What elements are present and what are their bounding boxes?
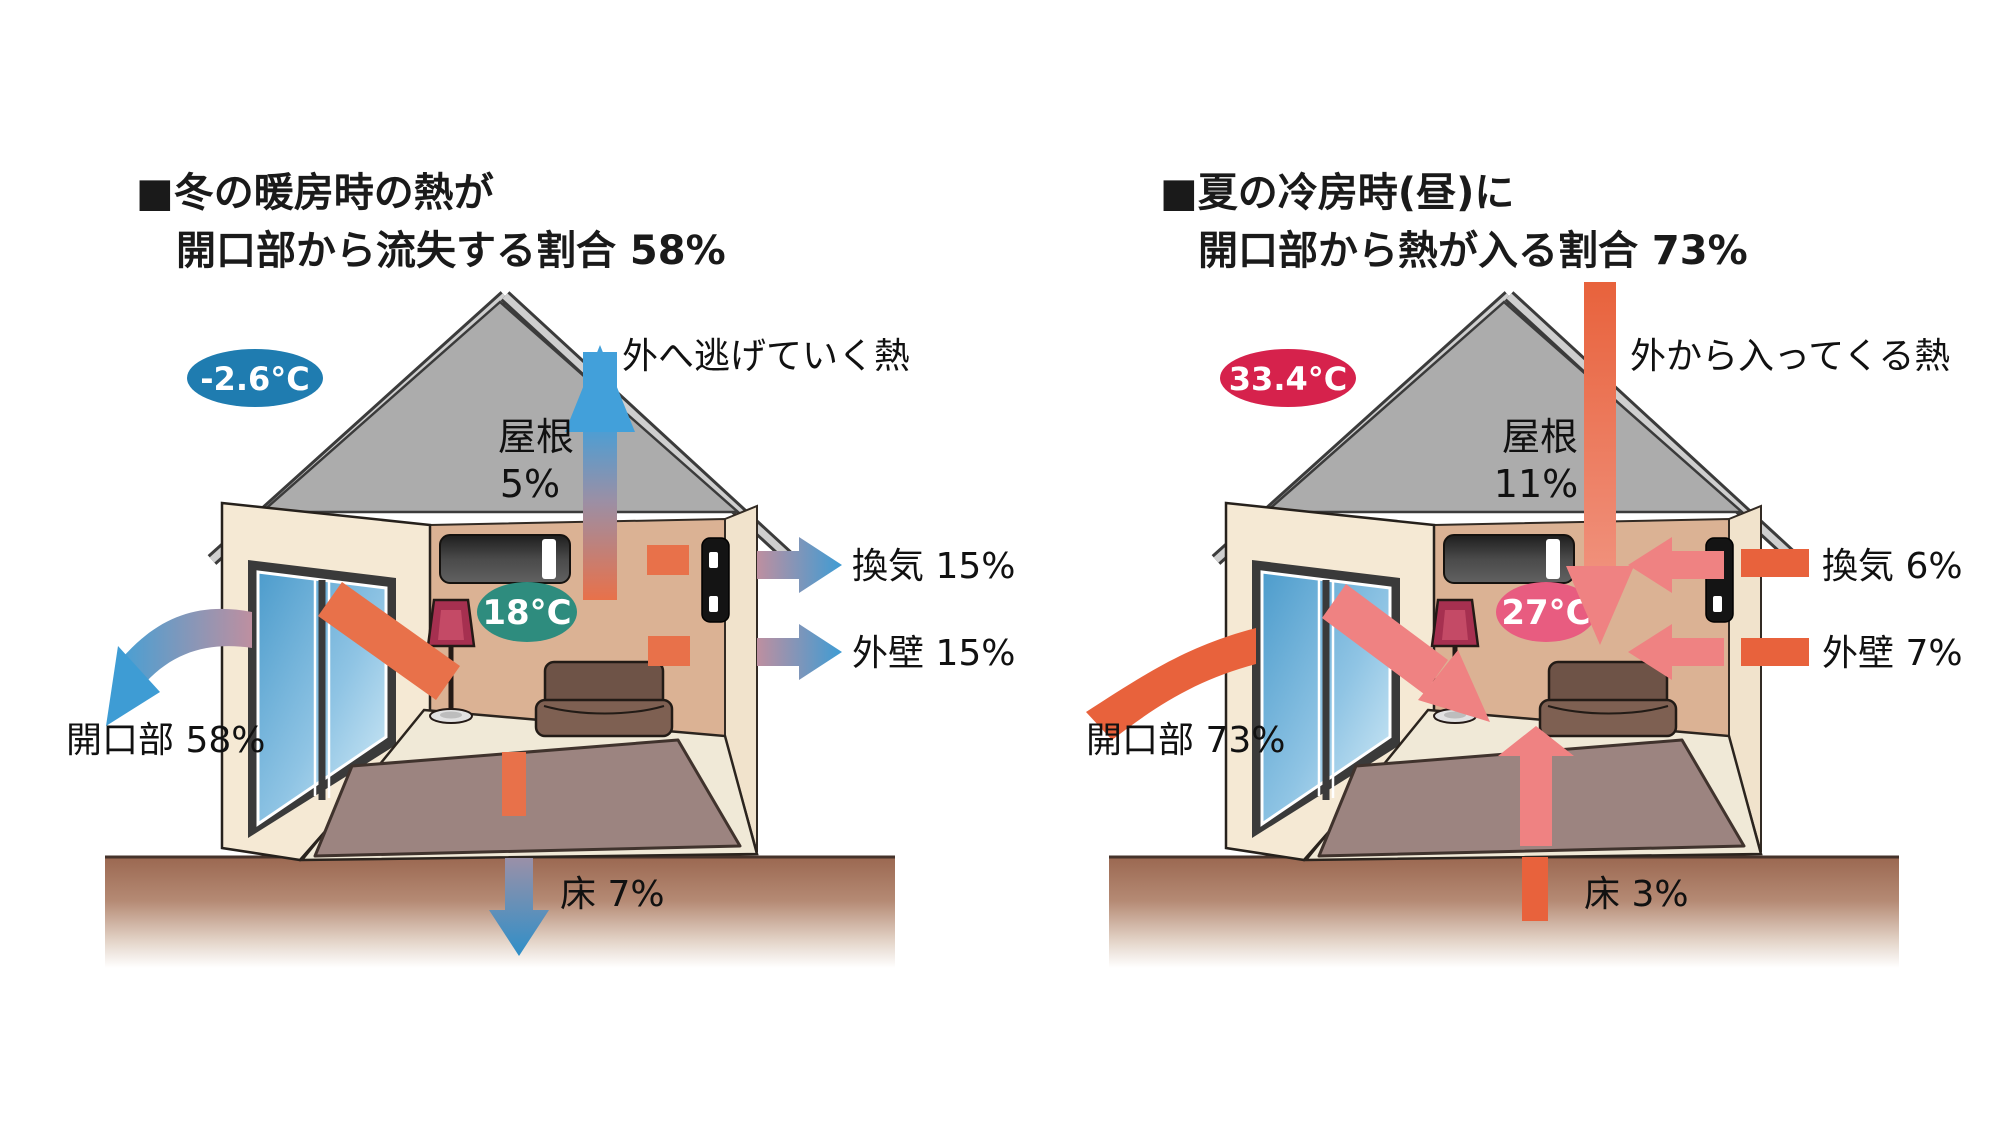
indoor-temp-winter: 18°C	[482, 593, 571, 633]
sofa	[1540, 662, 1676, 736]
wall-vent	[1706, 538, 1733, 622]
winter-roof-value: 5%	[500, 462, 560, 506]
roof-heat-shaft	[583, 420, 617, 600]
diagram-canvas: ■冬の暖房時の熱が 開口部から流失する割合 58%	[0, 0, 2000, 1125]
summer-wall-label: 外壁 7%	[1822, 633, 1963, 674]
roof-heat-shaft-in	[1584, 282, 1616, 574]
outdoor-temp-badge-winter: -2.6°C	[187, 349, 323, 407]
winter-flow-note: 外へ逃げていく熱	[622, 336, 910, 377]
air-conditioner	[1444, 535, 1574, 583]
winter-panel: ■冬の暖房時の熱が 開口部から流失する割合 58%	[66, 170, 1015, 968]
winter-vent-label: 換気 15%	[852, 546, 1015, 587]
wall-vent	[702, 538, 729, 622]
ground-summer	[1109, 856, 1899, 968]
winter-title-line2: 開口部から流失する割合 58%	[176, 228, 726, 274]
outdoor-temp-badge-summer: 33.4°C	[1220, 349, 1356, 407]
indoor-temp-summer: 27°C	[1501, 593, 1590, 633]
wall-heat-inner	[648, 636, 690, 666]
vent-heat-outer	[1741, 549, 1809, 577]
wall-heat-arrow-out	[757, 624, 842, 680]
summer-roof-label: 屋根	[1502, 415, 1578, 459]
wall-heat-outer	[1741, 638, 1809, 666]
summer-vent-label: 換気 6%	[1822, 546, 1963, 587]
summer-title-line2: 開口部から熱が入る割合 73%	[1198, 228, 1748, 274]
summer-flow-note: 外から入ってくる熱	[1630, 336, 1950, 377]
winter-roof-label: 屋根	[498, 415, 574, 459]
summer-opening-label: 開口部 73%	[1086, 720, 1285, 761]
summer-title-line1: ■夏の冷房時(昼)に	[1160, 170, 1514, 216]
winter-title-line1: ■冬の暖房時の熱が	[136, 170, 494, 216]
summer-floor-label: 床 3%	[1584, 874, 1689, 915]
air-conditioner	[440, 535, 570, 583]
floor-heat-outer	[1522, 857, 1548, 921]
outdoor-temp-winter: -2.6°C	[200, 360, 309, 398]
winter-wall-label: 外壁 15%	[852, 633, 1015, 674]
summer-panel: ■夏の冷房時(昼)に 開口部から熱が入る割合 73%	[1086, 170, 1963, 968]
vent-heat-inner	[647, 545, 689, 575]
infographic-heat-flow: ■冬の暖房時の熱が 開口部から流失する割合 58%	[0, 0, 2000, 1125]
outdoor-temp-summer: 33.4°C	[1229, 360, 1347, 398]
sofa	[536, 662, 672, 736]
winter-opening-label: 開口部 58%	[66, 720, 265, 761]
winter-floor-label: 床 7%	[560, 874, 665, 915]
indoor-temp-badge-winter: 18°C	[477, 582, 577, 642]
floor-heat-inner	[502, 752, 526, 816]
summer-roof-value: 11%	[1494, 462, 1578, 506]
